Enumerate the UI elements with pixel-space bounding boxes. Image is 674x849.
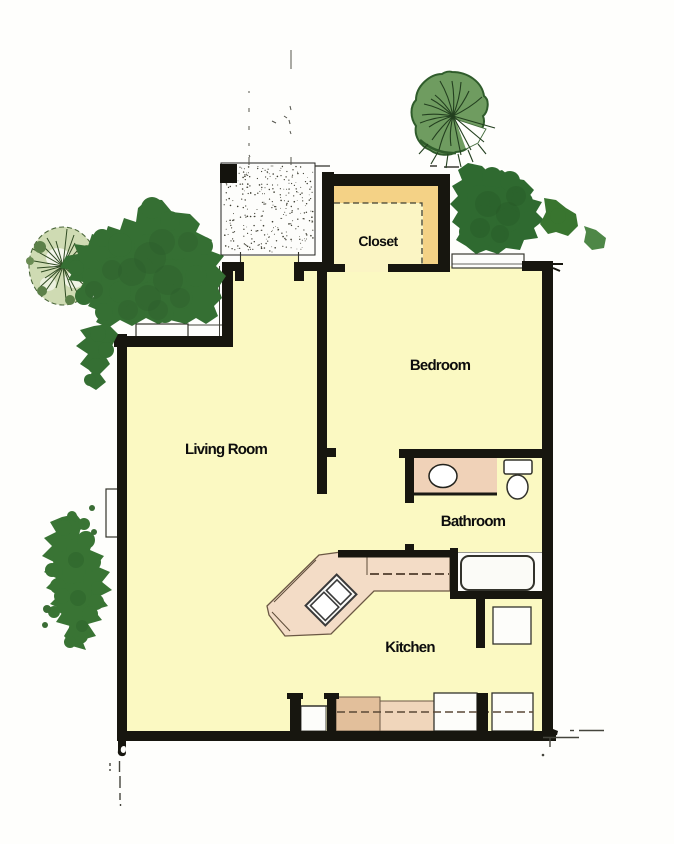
svg-text:Living Room: Living Room	[185, 441, 267, 458]
svg-text:Closet: Closet	[358, 233, 398, 249]
svg-text:Bedroom: Bedroom	[410, 357, 471, 374]
svg-text:Kitchen: Kitchen	[385, 639, 435, 656]
svg-text:Bathroom: Bathroom	[441, 513, 506, 530]
